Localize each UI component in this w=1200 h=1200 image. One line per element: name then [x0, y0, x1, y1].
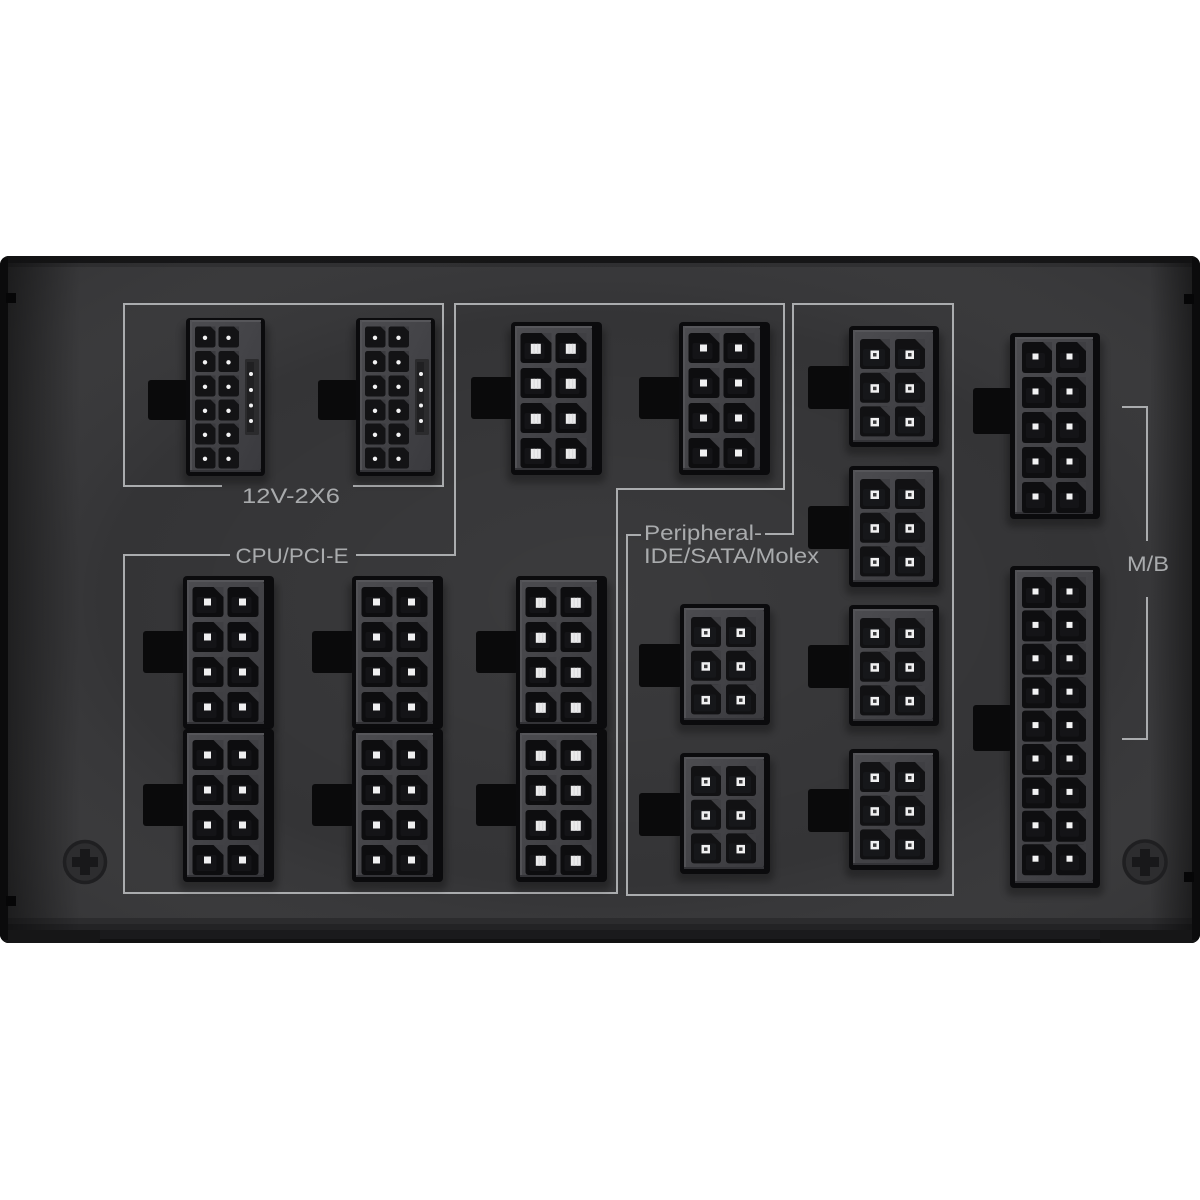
svg-text:M/B: M/B — [1127, 553, 1169, 576]
svg-text:CPU/PCI-E: CPU/PCI-E — [236, 545, 349, 568]
svg-text:IDE/SATA/Molex: IDE/SATA/Molex — [644, 545, 820, 568]
svg-text:Peripheral-: Peripheral- — [644, 522, 762, 545]
svg-text:12V-2X6: 12V-2X6 — [242, 485, 340, 508]
